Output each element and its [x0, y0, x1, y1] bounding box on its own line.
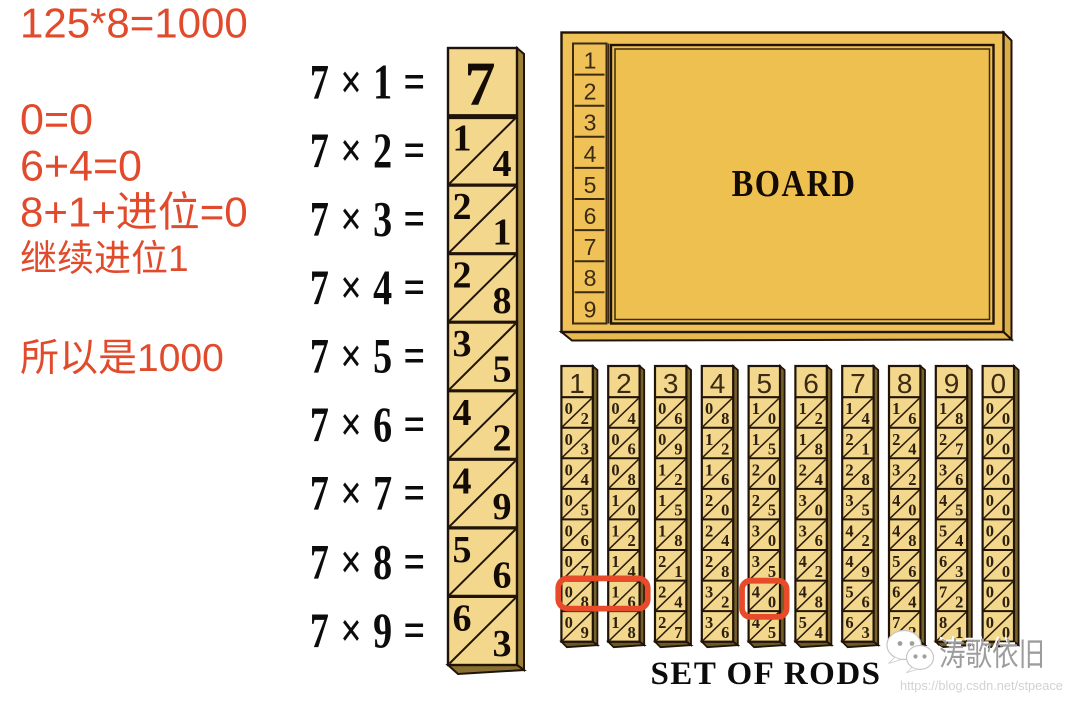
svg-text:2: 2 [453, 255, 472, 297]
svg-text:6: 6 [955, 470, 963, 489]
svg-text:5: 5 [845, 583, 853, 602]
svg-text:7 × 6 =: 7 × 6 = [310, 397, 426, 452]
svg-text:6: 6 [815, 531, 823, 550]
svg-text:7: 7 [674, 623, 682, 642]
svg-text:4: 4 [453, 460, 472, 502]
svg-text:6: 6 [493, 554, 512, 596]
svg-text:3: 3 [939, 460, 947, 479]
svg-text:0: 0 [565, 583, 573, 602]
svg-text:3: 3 [845, 491, 853, 510]
svg-text:4: 4 [453, 392, 472, 434]
svg-text:4: 4 [955, 531, 963, 550]
svg-text:0: 0 [815, 501, 823, 520]
svg-text:5: 5 [939, 521, 947, 540]
svg-text:5: 5 [584, 172, 597, 198]
svg-text:2: 2 [721, 440, 729, 459]
svg-text:0: 0 [986, 460, 994, 479]
svg-text:2: 2 [658, 552, 666, 571]
svg-text:1: 1 [453, 118, 472, 160]
svg-text:4: 4 [861, 409, 869, 428]
svg-text:1: 1 [611, 521, 619, 540]
svg-text:9: 9 [493, 486, 512, 528]
svg-text:2: 2 [705, 491, 713, 510]
svg-text:6: 6 [581, 531, 589, 550]
svg-text:1: 1 [845, 399, 853, 418]
svg-text:2: 2 [627, 531, 635, 550]
svg-text:9: 9 [581, 623, 589, 642]
svg-text:2: 2 [658, 583, 666, 602]
svg-text:0: 0 [1002, 470, 1010, 489]
svg-text:5: 5 [493, 349, 512, 391]
svg-text:4: 4 [908, 440, 916, 459]
svg-text:1: 1 [705, 430, 713, 449]
svg-text:0: 0 [565, 399, 573, 418]
svg-text:8: 8 [815, 592, 823, 611]
svg-text:8: 8 [627, 623, 635, 642]
svg-text:4: 4 [845, 552, 853, 571]
svg-text:6: 6 [939, 552, 947, 571]
svg-text:3: 3 [705, 583, 713, 602]
svg-text:7: 7 [939, 583, 947, 602]
svg-text:0: 0 [1002, 409, 1010, 428]
svg-text:8: 8 [493, 280, 512, 322]
svg-text:8: 8 [674, 531, 682, 550]
svg-text:1: 1 [705, 460, 713, 479]
svg-text:5: 5 [861, 501, 869, 520]
svg-text:1: 1 [658, 521, 666, 540]
svg-text:2: 2 [845, 430, 853, 449]
svg-text:3: 3 [453, 323, 472, 365]
svg-text:2: 2 [705, 521, 713, 540]
svg-text:1: 1 [799, 399, 807, 418]
svg-text:5: 5 [768, 440, 776, 459]
svg-text:7 × 9 =: 7 × 9 = [310, 603, 426, 658]
svg-text:0: 0 [768, 409, 776, 428]
svg-text:0: 0 [1002, 562, 1010, 581]
svg-text:5: 5 [955, 501, 963, 520]
svg-text:0: 0 [1002, 592, 1010, 611]
svg-text:0: 0 [565, 430, 573, 449]
svg-text:2: 2 [674, 470, 682, 489]
svg-text:7: 7 [850, 368, 866, 399]
svg-text:https://blog.csdn.net/stpeace: https://blog.csdn.net/stpeace [900, 678, 1063, 693]
svg-text:4: 4 [845, 521, 853, 540]
svg-text:1: 1 [752, 399, 760, 418]
svg-text:0: 0 [768, 470, 776, 489]
svg-text:4: 4 [674, 592, 682, 611]
svg-text:0: 0 [721, 501, 729, 520]
svg-text:7: 7 [584, 234, 597, 260]
svg-text:2: 2 [845, 460, 853, 479]
svg-text:8: 8 [939, 613, 947, 632]
svg-text:1: 1 [939, 399, 947, 418]
svg-text:2: 2 [892, 430, 900, 449]
svg-text:8: 8 [815, 440, 823, 459]
svg-text:1: 1 [674, 562, 682, 581]
svg-text:7: 7 [892, 613, 900, 632]
svg-text:0: 0 [705, 399, 713, 418]
svg-text:0: 0 [565, 460, 573, 479]
svg-text:2: 2 [752, 460, 760, 479]
svg-text:6: 6 [908, 409, 916, 428]
svg-text:3: 3 [663, 368, 679, 399]
svg-text:1: 1 [584, 48, 597, 74]
svg-text:0: 0 [986, 399, 994, 418]
svg-text:0: 0 [986, 430, 994, 449]
svg-text:3: 3 [581, 440, 589, 459]
svg-text:6: 6 [803, 368, 819, 399]
svg-text:6: 6 [908, 562, 916, 581]
svg-text:6: 6 [584, 203, 597, 229]
svg-text:0: 0 [986, 521, 994, 540]
svg-text:1: 1 [611, 552, 619, 571]
svg-text:1: 1 [611, 613, 619, 632]
svg-text:1: 1 [493, 212, 512, 254]
svg-text:2: 2 [939, 430, 947, 449]
svg-text:8: 8 [908, 531, 916, 550]
svg-text:5: 5 [768, 501, 776, 520]
svg-text:9: 9 [861, 562, 869, 581]
svg-text:3: 3 [584, 110, 597, 136]
svg-text:9: 9 [584, 296, 597, 322]
svg-text:BOARD: BOARD [732, 161, 857, 204]
svg-text:4: 4 [581, 470, 589, 489]
svg-text:5: 5 [453, 529, 472, 571]
svg-text:5: 5 [674, 501, 682, 520]
svg-text:SET OF RODS: SET OF RODS [650, 656, 881, 692]
svg-text:8: 8 [721, 562, 729, 581]
svg-text:5: 5 [757, 368, 773, 399]
svg-text:4: 4 [710, 368, 726, 399]
svg-text:3: 3 [493, 623, 512, 665]
svg-text:7 × 1 =: 7 × 1 = [310, 55, 426, 110]
svg-text:0: 0 [565, 521, 573, 540]
svg-text:1: 1 [611, 583, 619, 602]
svg-text:0: 0 [1002, 501, 1010, 520]
svg-text:3: 3 [892, 460, 900, 479]
svg-text:0: 0 [986, 613, 994, 632]
svg-text:4: 4 [799, 552, 807, 571]
svg-text:2: 2 [581, 409, 589, 428]
svg-text:6: 6 [627, 440, 635, 459]
svg-text:2: 2 [493, 417, 512, 459]
svg-text:2: 2 [861, 531, 869, 550]
svg-text:3: 3 [799, 491, 807, 510]
svg-text:5: 5 [581, 501, 589, 520]
svg-text:2: 2 [705, 552, 713, 571]
svg-text:2: 2 [752, 491, 760, 510]
svg-text:7: 7 [465, 51, 496, 119]
svg-text:4: 4 [815, 623, 823, 642]
svg-text:7 × 4 =: 7 × 4 = [310, 260, 426, 315]
svg-text:0: 0 [986, 552, 994, 571]
svg-text:3: 3 [861, 623, 869, 642]
svg-text:1: 1 [752, 430, 760, 449]
svg-text:7 × 2 =: 7 × 2 = [310, 123, 426, 178]
svg-text:2: 2 [955, 592, 963, 611]
svg-text:5: 5 [892, 552, 900, 571]
svg-text:0: 0 [658, 399, 666, 418]
svg-text:0: 0 [768, 531, 776, 550]
svg-text:2: 2 [799, 460, 807, 479]
svg-text:0: 0 [658, 430, 666, 449]
svg-text:4: 4 [493, 143, 512, 185]
svg-text:6: 6 [861, 592, 869, 611]
svg-text:8: 8 [584, 265, 597, 291]
svg-text:7 × 7 =: 7 × 7 = [310, 466, 426, 521]
svg-text:2: 2 [584, 79, 597, 105]
svg-text:1: 1 [892, 399, 900, 418]
svg-text:0: 0 [1002, 440, 1010, 459]
svg-text:0: 0 [1002, 531, 1010, 550]
svg-text:3: 3 [705, 613, 713, 632]
svg-text:7 × 5 =: 7 × 5 = [310, 329, 426, 384]
svg-text:4: 4 [627, 409, 635, 428]
svg-text:1: 1 [861, 440, 869, 459]
svg-text:6: 6 [892, 583, 900, 602]
svg-text:8: 8 [955, 409, 963, 428]
svg-text:0: 0 [991, 368, 1007, 399]
svg-text:2: 2 [658, 613, 666, 632]
svg-text:7 × 3 =: 7 × 3 = [310, 192, 426, 247]
svg-text:1: 1 [955, 623, 963, 642]
svg-text:1: 1 [611, 491, 619, 510]
svg-text:8: 8 [897, 368, 913, 399]
svg-text:1: 1 [569, 368, 585, 399]
svg-text:0: 0 [565, 491, 573, 510]
svg-text:6: 6 [453, 597, 472, 639]
svg-text:4: 4 [584, 141, 597, 167]
svg-text:2: 2 [815, 409, 823, 428]
svg-text:6: 6 [721, 470, 729, 489]
svg-text:4: 4 [799, 583, 807, 602]
svg-text:3: 3 [799, 521, 807, 540]
svg-text:6: 6 [845, 613, 853, 632]
svg-text:0: 0 [611, 430, 619, 449]
svg-text:1: 1 [658, 491, 666, 510]
svg-text:9: 9 [674, 440, 682, 459]
svg-text:4: 4 [815, 470, 823, 489]
svg-text:4: 4 [752, 583, 760, 602]
svg-text:3: 3 [955, 562, 963, 581]
svg-text:0: 0 [768, 592, 776, 611]
svg-text:3: 3 [752, 521, 760, 540]
svg-text:4: 4 [892, 491, 900, 510]
svg-text:2: 2 [616, 368, 632, 399]
svg-text:8: 8 [627, 470, 635, 489]
svg-text:4: 4 [721, 531, 729, 550]
svg-text:9: 9 [944, 368, 960, 399]
svg-text:7 × 8 =: 7 × 8 = [310, 535, 426, 590]
svg-text:0: 0 [986, 491, 994, 510]
svg-text:3: 3 [752, 552, 760, 571]
svg-text:6: 6 [721, 623, 729, 642]
svg-text:8: 8 [861, 470, 869, 489]
svg-text:2: 2 [721, 592, 729, 611]
svg-text:0: 0 [565, 613, 573, 632]
svg-text:2: 2 [453, 186, 472, 228]
svg-text:0: 0 [611, 399, 619, 418]
svg-text:0: 0 [908, 501, 916, 520]
svg-text:0: 0 [565, 552, 573, 571]
svg-text:4: 4 [939, 491, 947, 510]
svg-text:7: 7 [955, 440, 963, 459]
svg-text:0: 0 [627, 501, 635, 520]
svg-text:1: 1 [658, 460, 666, 479]
svg-text:5: 5 [768, 623, 776, 642]
svg-text:4: 4 [892, 521, 900, 540]
svg-text:6: 6 [674, 409, 682, 428]
svg-text:2: 2 [815, 562, 823, 581]
svg-text:2: 2 [908, 470, 916, 489]
svg-text:0: 0 [611, 460, 619, 479]
svg-text:4: 4 [908, 592, 916, 611]
svg-text:1: 1 [799, 430, 807, 449]
svg-text:8: 8 [721, 409, 729, 428]
svg-text:5: 5 [799, 613, 807, 632]
svg-text:0: 0 [986, 583, 994, 602]
